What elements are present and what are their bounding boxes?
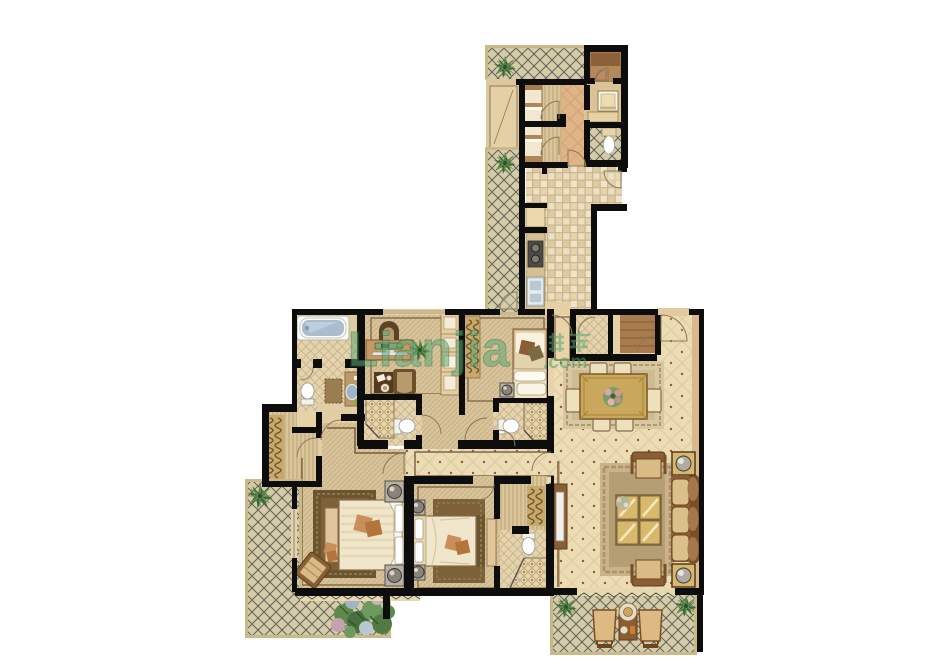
svg-text:.com: .com bbox=[543, 352, 587, 373]
svg-text:Lianjia: Lianjia bbox=[348, 323, 510, 377]
